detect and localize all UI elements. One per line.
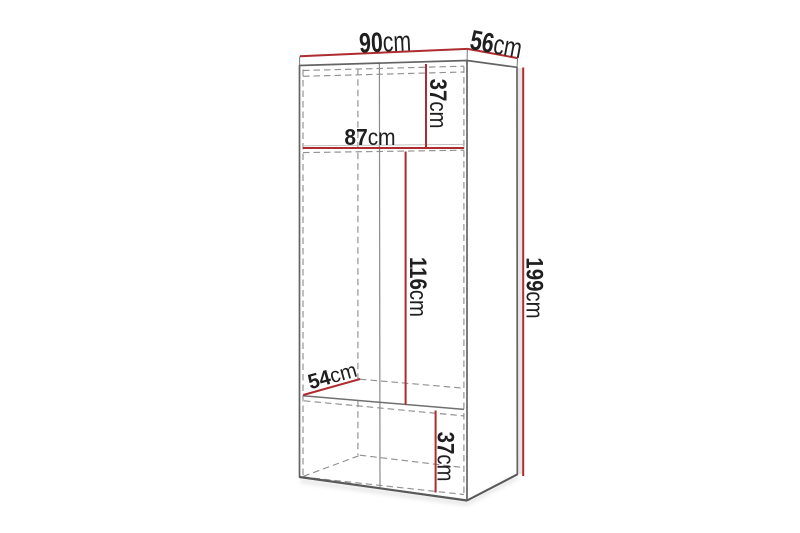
svg-text:37cm: 37cm	[424, 79, 451, 129]
svg-text:54cm: 54cm	[305, 358, 359, 394]
svg-text:116cm: 116cm	[404, 257, 431, 317]
svg-text:199cm: 199cm	[521, 257, 548, 318]
svg-text:56cm: 56cm	[468, 24, 525, 64]
svg-text:87cm: 87cm	[344, 124, 395, 150]
svg-text:37cm: 37cm	[432, 432, 459, 482]
svg-text:90cm: 90cm	[358, 26, 411, 60]
